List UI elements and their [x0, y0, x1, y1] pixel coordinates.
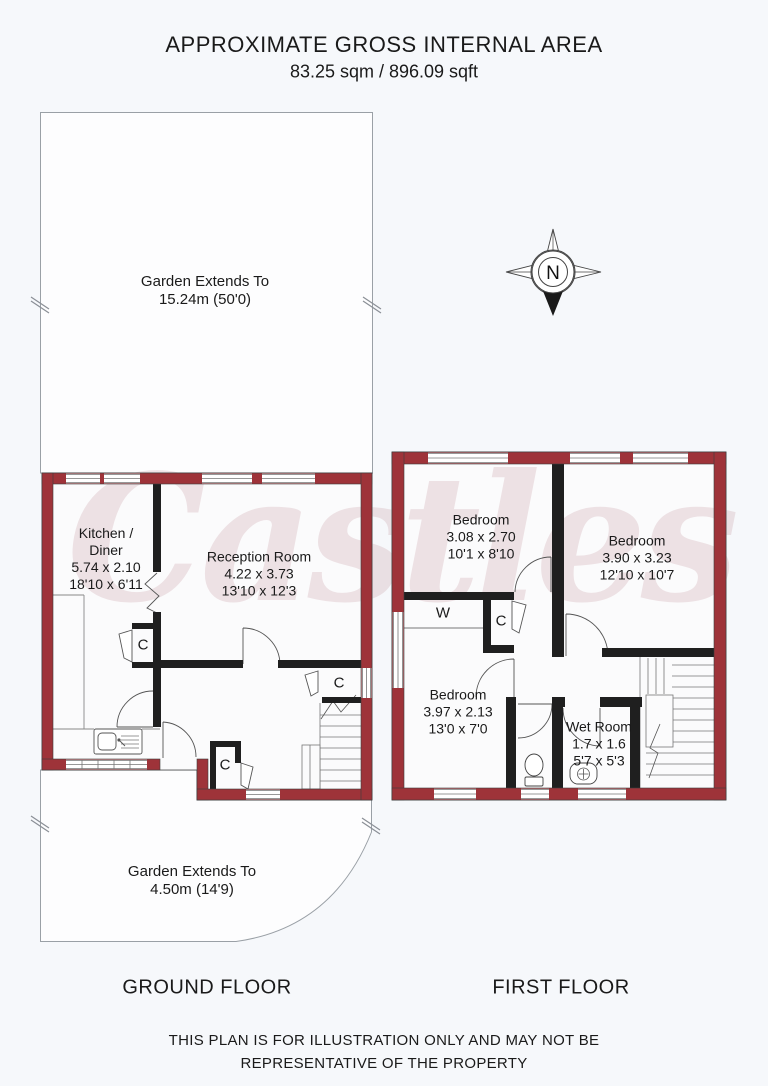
window [570, 453, 620, 463]
window [633, 453, 688, 463]
window [246, 790, 280, 800]
room-name: Reception Room [207, 549, 311, 566]
room-name: Diner [69, 542, 143, 559]
room-label-bedroom3: Bedroom 3.97 x 2.13 13'0 x 7'0 [423, 687, 492, 738]
window [104, 474, 140, 484]
toilet-icon [525, 754, 543, 786]
window [434, 789, 476, 799]
closet-label: C [496, 613, 507, 630]
room-name: Bedroom [600, 533, 675, 550]
window [262, 474, 315, 484]
garden-bottom-line2: 4.50m (14'9) [128, 881, 256, 899]
compass: N [506, 229, 601, 316]
window [428, 453, 508, 463]
garden-bottom-label: Garden Extends To 4.50m (14'9) [128, 863, 256, 899]
room-dim-imperial: 13'0 x 7'0 [423, 721, 492, 738]
room-dim-imperial: 12'10 x 10'7 [600, 567, 675, 584]
room-label-reception: Reception Room 4.22 x 3.73 13'10 x 12'3 [207, 549, 311, 600]
room-dim-metric: 3.97 x 2.13 [423, 704, 492, 721]
footer-line1: THIS PLAN IS FOR ILLUSTRATION ONLY AND M… [169, 1029, 600, 1052]
room-dim-metric: 3.08 x 2.70 [446, 529, 515, 546]
window [66, 760, 147, 770]
room-dim-imperial: 10'1 x 8'10 [446, 546, 515, 563]
kitchen-sink-icon [94, 729, 142, 754]
footer-disclaimer: THIS PLAN IS FOR ILLUSTRATION ONLY AND M… [169, 1029, 600, 1075]
room-label-bedroom2: Bedroom 3.90 x 3.23 12'10 x 10'7 [600, 533, 675, 584]
area-subtitle: 83.25 sqm / 896.09 sqft [290, 62, 478, 83]
closet-label: C [138, 637, 149, 654]
room-label-bedroom1: Bedroom 3.08 x 2.70 10'1 x 8'10 [446, 512, 515, 563]
compass-north-label: N [546, 263, 560, 284]
room-name: Kitchen / [69, 525, 143, 542]
floorplan-page: Castles [0, 0, 768, 1086]
garden-top-label: Garden Extends To 15.24m (50'0) [141, 273, 269, 309]
floor-label-first: FIRST FLOOR [492, 977, 629, 1000]
closet-label: C [220, 757, 231, 774]
room-label-kitchen-diner: Kitchen / Diner 5.74 x 2.10 18'10 x 6'11 [69, 525, 143, 593]
window [362, 668, 372, 698]
page-title: APPROXIMATE GROSS INTERNAL AREA [165, 32, 602, 58]
window [393, 612, 403, 688]
window [578, 789, 626, 799]
room-name: Bedroom [423, 687, 492, 704]
room-dim-imperial: 5'7 x 5'3 [566, 753, 632, 770]
room-name: Wet Room [566, 719, 632, 736]
floor-label-ground: GROUND FLOOR [122, 977, 291, 1000]
room-dim-metric: 4.22 x 3.73 [207, 566, 311, 583]
room-dim-metric: 1.7 x 1.6 [566, 736, 632, 753]
garden-top-line2: 15.24m (50'0) [141, 291, 269, 309]
window [202, 474, 252, 484]
footer-line2: REPRESENTATIVE OF THE PROPERTY [169, 1052, 600, 1075]
window [521, 789, 549, 799]
garden-bottom-line1: Garden Extends To [128, 863, 256, 881]
room-name: Bedroom [446, 512, 515, 529]
room-dim-imperial: 13'10 x 12'3 [207, 583, 311, 600]
room-dim-imperial: 18'10 x 6'11 [69, 576, 143, 593]
room-dim-metric: 3.90 x 3.23 [600, 550, 675, 567]
wardrobe-label: W [436, 605, 450, 622]
window [66, 474, 100, 484]
room-dim-metric: 5.74 x 2.10 [69, 559, 143, 576]
garden-top-line1: Garden Extends To [141, 273, 269, 291]
closet-label: C [334, 675, 345, 692]
room-label-wet-room: Wet Room 1.7 x 1.6 5'7 x 5'3 [566, 719, 632, 770]
